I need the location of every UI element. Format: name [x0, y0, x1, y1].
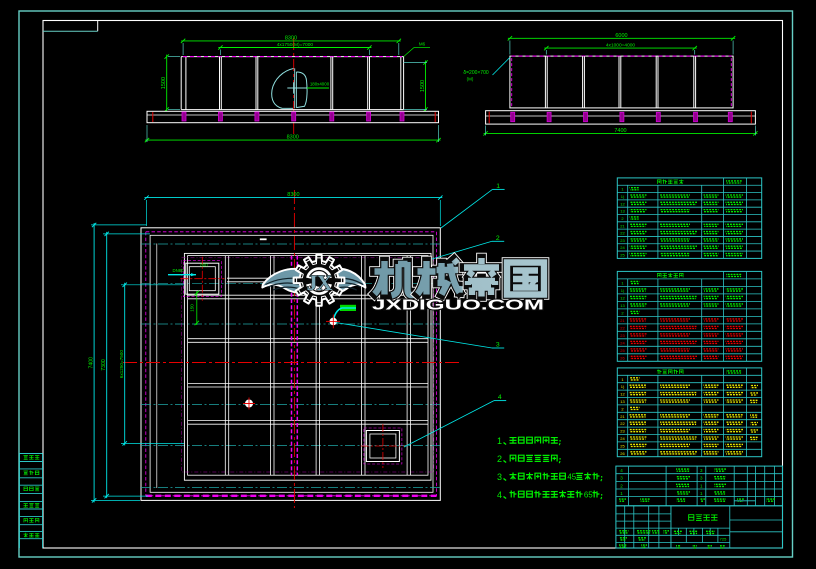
svg-text:13: 13 [620, 303, 625, 308]
svg-text:21: 21 [620, 414, 625, 419]
svg-text:4: 4 [497, 490, 502, 500]
svg-text:6x1250=7500: 6x1250=7500 [119, 350, 124, 378]
svg-text:6000: 6000 [615, 33, 627, 39]
svg-text:7400: 7400 [89, 357, 95, 369]
svg-text:150: 150 [190, 304, 195, 312]
svg-text:4x1000=4000: 4x1000=4000 [606, 43, 636, 49]
svg-text:13: 13 [620, 209, 625, 214]
svg-text:2: 2 [497, 454, 502, 464]
svg-text:21: 21 [620, 318, 625, 323]
svg-text:8300: 8300 [287, 192, 299, 198]
svg-text:1500: 1500 [420, 80, 426, 92]
svg-text:JX: JX [307, 270, 333, 295]
svg-text:δ=200×700: δ=200×700 [463, 70, 489, 76]
svg-text:JXDIGUO.COM: JXDIGUO.COM [372, 297, 544, 314]
svg-text:2: 2 [496, 235, 500, 242]
svg-text:24: 24 [620, 245, 625, 250]
svg-text:DN80: DN80 [173, 268, 185, 273]
svg-text:8300: 8300 [287, 135, 299, 141]
svg-text:23: 23 [620, 429, 625, 434]
svg-text:1: 1 [496, 183, 500, 190]
svg-text:4: 4 [498, 394, 502, 401]
svg-text:M6: M6 [419, 42, 426, 47]
svg-text:3: 3 [496, 342, 500, 349]
svg-text:1500: 1500 [161, 77, 167, 89]
svg-text:7400: 7400 [614, 128, 626, 134]
svg-text:(M): (M) [467, 77, 474, 82]
svg-text:800: 800 [200, 263, 208, 268]
svg-text:22: 22 [620, 421, 625, 426]
svg-text:13: 13 [620, 399, 625, 404]
svg-text:65: 65 [584, 491, 593, 500]
svg-text:26: 26 [620, 355, 625, 360]
svg-text:12: 12 [620, 201, 625, 206]
svg-text:7300: 7300 [101, 359, 107, 371]
svg-text:8300: 8300 [285, 35, 297, 41]
svg-text:22: 22 [620, 325, 625, 330]
svg-text:45: 45 [567, 473, 576, 482]
svg-text:24: 24 [620, 436, 625, 441]
svg-text:25: 25 [620, 443, 625, 448]
svg-text:21: 21 [620, 223, 625, 228]
svg-text:12: 12 [620, 295, 625, 300]
svg-text:180x4000: 180x4000 [310, 81, 330, 86]
svg-text:23: 23 [620, 238, 625, 243]
svg-text:3: 3 [497, 472, 502, 482]
svg-text:25: 25 [620, 253, 625, 258]
svg-text:22: 22 [620, 231, 625, 236]
svg-text:23: 23 [620, 333, 625, 338]
svg-text:4x1750(M)=7000: 4x1750(M)=7000 [277, 42, 314, 48]
svg-text:26: 26 [620, 451, 625, 456]
svg-text:725: 725 [720, 537, 727, 542]
svg-text:12: 12 [620, 392, 625, 397]
svg-text:25: 25 [620, 348, 625, 353]
svg-text:24: 24 [620, 340, 625, 345]
svg-text:1: 1 [497, 436, 502, 446]
